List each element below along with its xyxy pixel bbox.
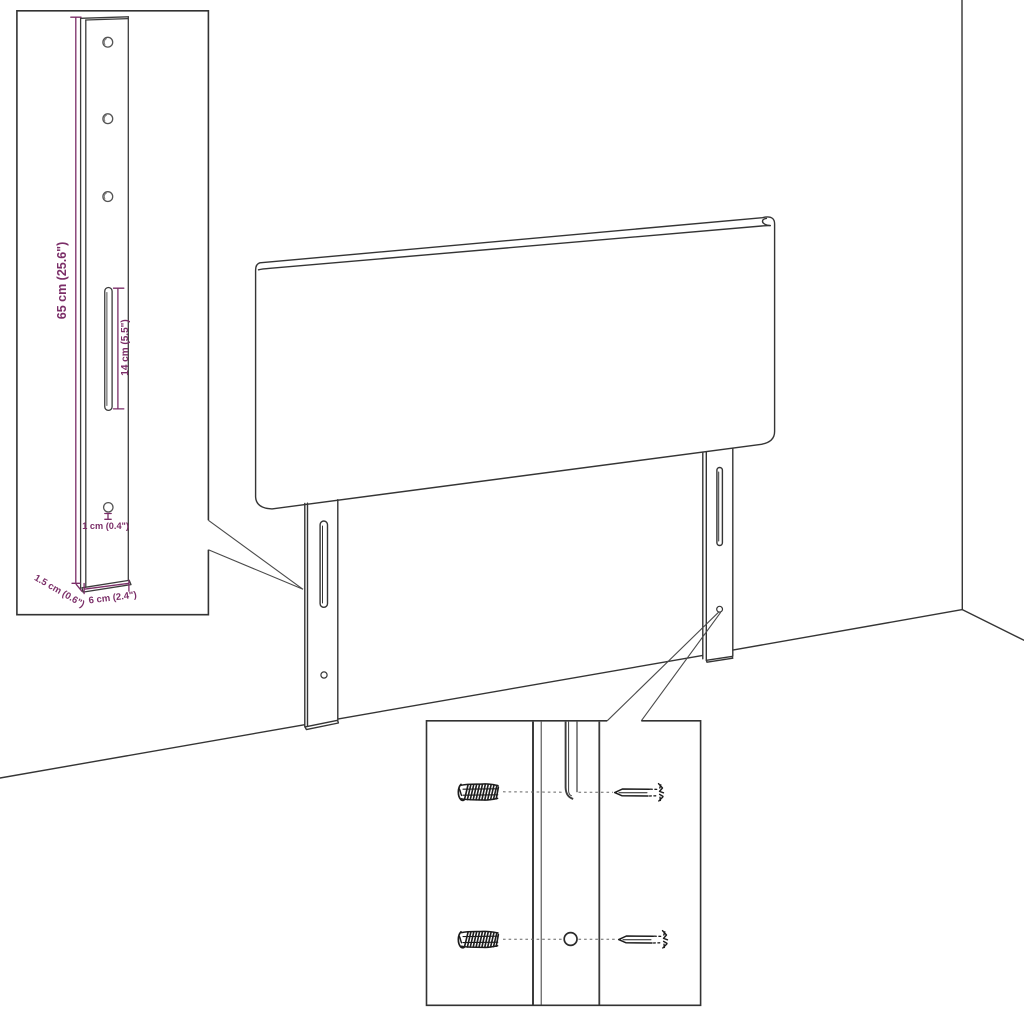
svg-text:14 cm (5.5"): 14 cm (5.5") <box>120 319 131 375</box>
svg-text:1 cm (0.4"): 1 cm (0.4") <box>82 521 129 531</box>
svg-text:65 cm (25.6"): 65 cm (25.6") <box>55 242 69 320</box>
